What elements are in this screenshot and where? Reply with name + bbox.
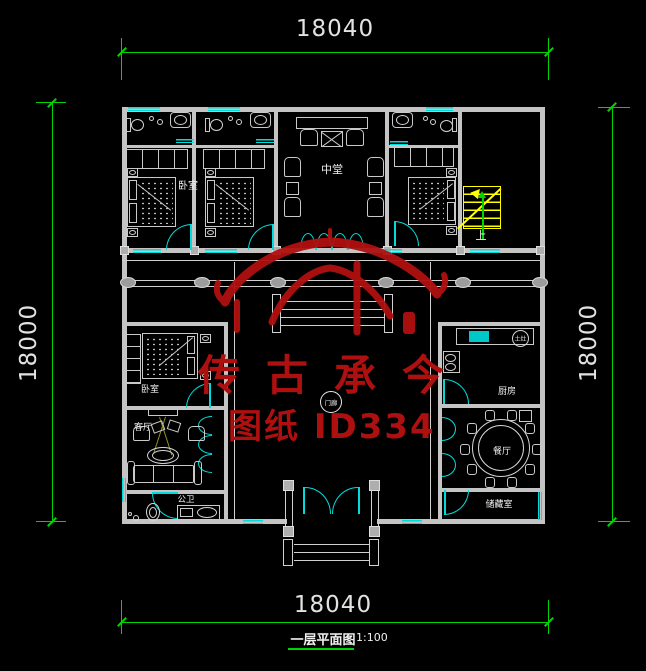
pillow-icon <box>447 202 455 221</box>
dining-chair-icon <box>467 423 477 434</box>
dining-chair-icon <box>467 464 477 475</box>
door-leaf <box>444 490 446 515</box>
window <box>256 139 274 143</box>
shower-icon <box>236 119 242 125</box>
wall <box>540 107 545 524</box>
drawing-scale: 1:100 <box>356 631 398 644</box>
entrance-door-arc <box>305 487 331 514</box>
drawing-title: 一层平面图 <box>288 629 358 648</box>
room-label-dining: 餐厅 <box>489 444 515 457</box>
dining-chair-icon <box>525 464 535 475</box>
dimension-text-top: 18040 <box>270 16 400 42</box>
toilet-icon <box>131 119 144 131</box>
window <box>176 139 194 143</box>
room-label-hall: 中堂 <box>317 161 347 177</box>
room-label-kitchen: 厨房 <box>494 384 520 397</box>
coffee-table-icon <box>152 450 174 461</box>
nightstand-icon <box>205 168 216 177</box>
armchair-icon <box>188 426 205 441</box>
door-arc <box>442 453 456 477</box>
window <box>426 107 453 113</box>
window <box>128 107 160 113</box>
chair-icon <box>367 197 384 217</box>
extension-line <box>598 107 630 108</box>
cabinet-icon <box>519 410 532 422</box>
dining-chair-icon <box>532 444 542 455</box>
pillow-icon <box>187 357 195 375</box>
room-label-storage: 储藏室 <box>478 497 520 510</box>
room-label-bath: 公卫 <box>173 493 199 505</box>
dimension-line-left <box>52 103 53 523</box>
wardrobe-icon <box>126 334 141 384</box>
wall <box>438 404 545 408</box>
porch-column <box>283 480 294 491</box>
room-label-bedroom-left: 卧室 <box>137 382 163 395</box>
shower-icon <box>423 116 428 121</box>
chair-icon <box>367 157 384 177</box>
tv-icon <box>148 409 178 416</box>
armchair-icon <box>300 129 318 146</box>
porch-step-rail <box>369 539 379 566</box>
room-label-living: 客厅 <box>130 420 156 433</box>
stair-direction-arrow <box>478 191 486 198</box>
window <box>402 520 422 526</box>
dining-chair-icon <box>460 444 470 455</box>
pillow-icon <box>207 180 215 200</box>
room-label-bedroom: 卧室 <box>174 177 202 192</box>
toilet-icon <box>452 118 457 132</box>
wardrobe-icon <box>394 147 454 167</box>
wall <box>458 107 462 253</box>
extension-line <box>548 600 549 634</box>
shower-icon <box>128 512 132 516</box>
nightstand-icon <box>127 168 138 177</box>
door-leaf <box>190 224 192 250</box>
dining-chair-icon <box>485 410 495 421</box>
entrance-door-leaf <box>358 487 360 514</box>
nightstand-icon <box>127 228 138 237</box>
door-arc <box>442 417 456 441</box>
sofa-armrest <box>194 461 202 485</box>
wardrobe-icon <box>126 149 188 169</box>
room-label-stairs-up: 上 <box>474 227 488 243</box>
dining-chair-icon <box>485 477 495 488</box>
shower-icon <box>133 515 139 521</box>
dimension-text-right: 18000 <box>576 282 602 404</box>
chair-icon <box>284 197 301 217</box>
extension-line <box>548 38 549 80</box>
dimension-text-left: 18000 <box>16 282 42 404</box>
shower-icon <box>430 119 436 125</box>
railing-post <box>532 277 548 288</box>
dimension-line-right <box>612 107 613 523</box>
altar-table-icon <box>296 117 368 129</box>
sink-icon <box>396 115 409 125</box>
shower-icon <box>228 116 233 121</box>
porch-column <box>369 526 380 537</box>
window <box>538 492 544 520</box>
porch-wall <box>285 491 286 526</box>
porch-column <box>369 480 380 491</box>
shower-icon <box>149 116 154 121</box>
wardrobe-icon <box>203 149 265 169</box>
shower-icon <box>157 119 163 125</box>
stove-circle-icon: 土灶 <box>512 330 529 347</box>
sink-icon <box>254 115 267 125</box>
nightstand-icon <box>446 168 457 177</box>
porch-wall <box>292 491 293 526</box>
window <box>208 107 240 113</box>
cushion-icon <box>167 419 182 432</box>
porch-step <box>294 560 369 561</box>
entrance-door-arc <box>332 487 358 514</box>
window <box>243 520 263 526</box>
title-underline <box>288 648 354 650</box>
dining-chair-icon <box>525 423 535 434</box>
porch-wall <box>378 491 379 526</box>
bed-blanket <box>140 181 173 224</box>
dimension-text-bottom: 18040 <box>268 592 398 618</box>
pillow-icon <box>129 203 137 223</box>
dimension-line-bottom <box>122 622 549 623</box>
dimension-line-top <box>122 52 549 53</box>
armchair-icon <box>346 129 364 146</box>
pillow-icon <box>129 180 137 200</box>
wall <box>196 145 274 148</box>
sofa-armrest <box>127 461 135 485</box>
chair-icon <box>284 157 301 177</box>
extension-line <box>121 38 122 80</box>
door-arc <box>166 224 192 250</box>
railing-post <box>455 277 471 288</box>
porch-step <box>294 544 369 545</box>
window <box>470 249 500 255</box>
side-table-icon <box>369 182 382 195</box>
dining-chair-icon <box>507 477 517 488</box>
column <box>536 246 545 255</box>
wall <box>124 145 192 148</box>
watermark-text-1: 传古承今 <box>198 342 470 403</box>
porch-wall <box>371 491 372 526</box>
porch-step <box>294 552 369 553</box>
porch-step-rail <box>283 539 293 566</box>
column <box>120 246 129 255</box>
pillow-icon <box>207 203 215 223</box>
railing-post <box>120 277 136 288</box>
kitchen-sink-icon <box>469 331 489 342</box>
toilet-icon <box>149 507 157 518</box>
floor-plan-canvas: 18040 18040 18000 18000 <box>0 0 646 671</box>
sofa-icon <box>133 465 195 483</box>
toilet-icon <box>210 119 223 131</box>
watermark-logo <box>205 228 455 343</box>
porch-column <box>283 526 294 537</box>
window <box>390 141 408 145</box>
washer-icon <box>180 508 193 517</box>
door-arc <box>444 490 469 515</box>
window <box>133 249 161 255</box>
sink-icon <box>197 507 217 518</box>
square-table-icon <box>321 131 343 147</box>
watermark-text-2: 图纸 ID334 <box>228 399 436 448</box>
sink-icon <box>174 115 187 125</box>
column <box>456 246 465 255</box>
bed-blanket <box>145 337 183 375</box>
dining-chair-icon <box>507 410 517 421</box>
side-table-icon <box>286 182 299 195</box>
extension-line <box>121 600 122 634</box>
bed-blanket <box>218 181 251 224</box>
